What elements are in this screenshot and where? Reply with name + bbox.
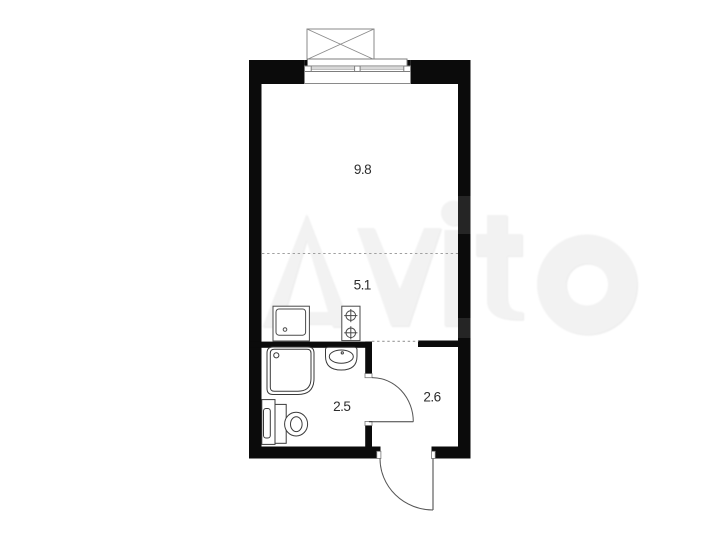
svg-text:2.6: 2.6 [423,390,440,405]
svg-text:9.8: 9.8 [354,162,371,177]
svg-text:2.5: 2.5 [333,399,350,414]
svg-text:5.1: 5.1 [354,278,371,293]
